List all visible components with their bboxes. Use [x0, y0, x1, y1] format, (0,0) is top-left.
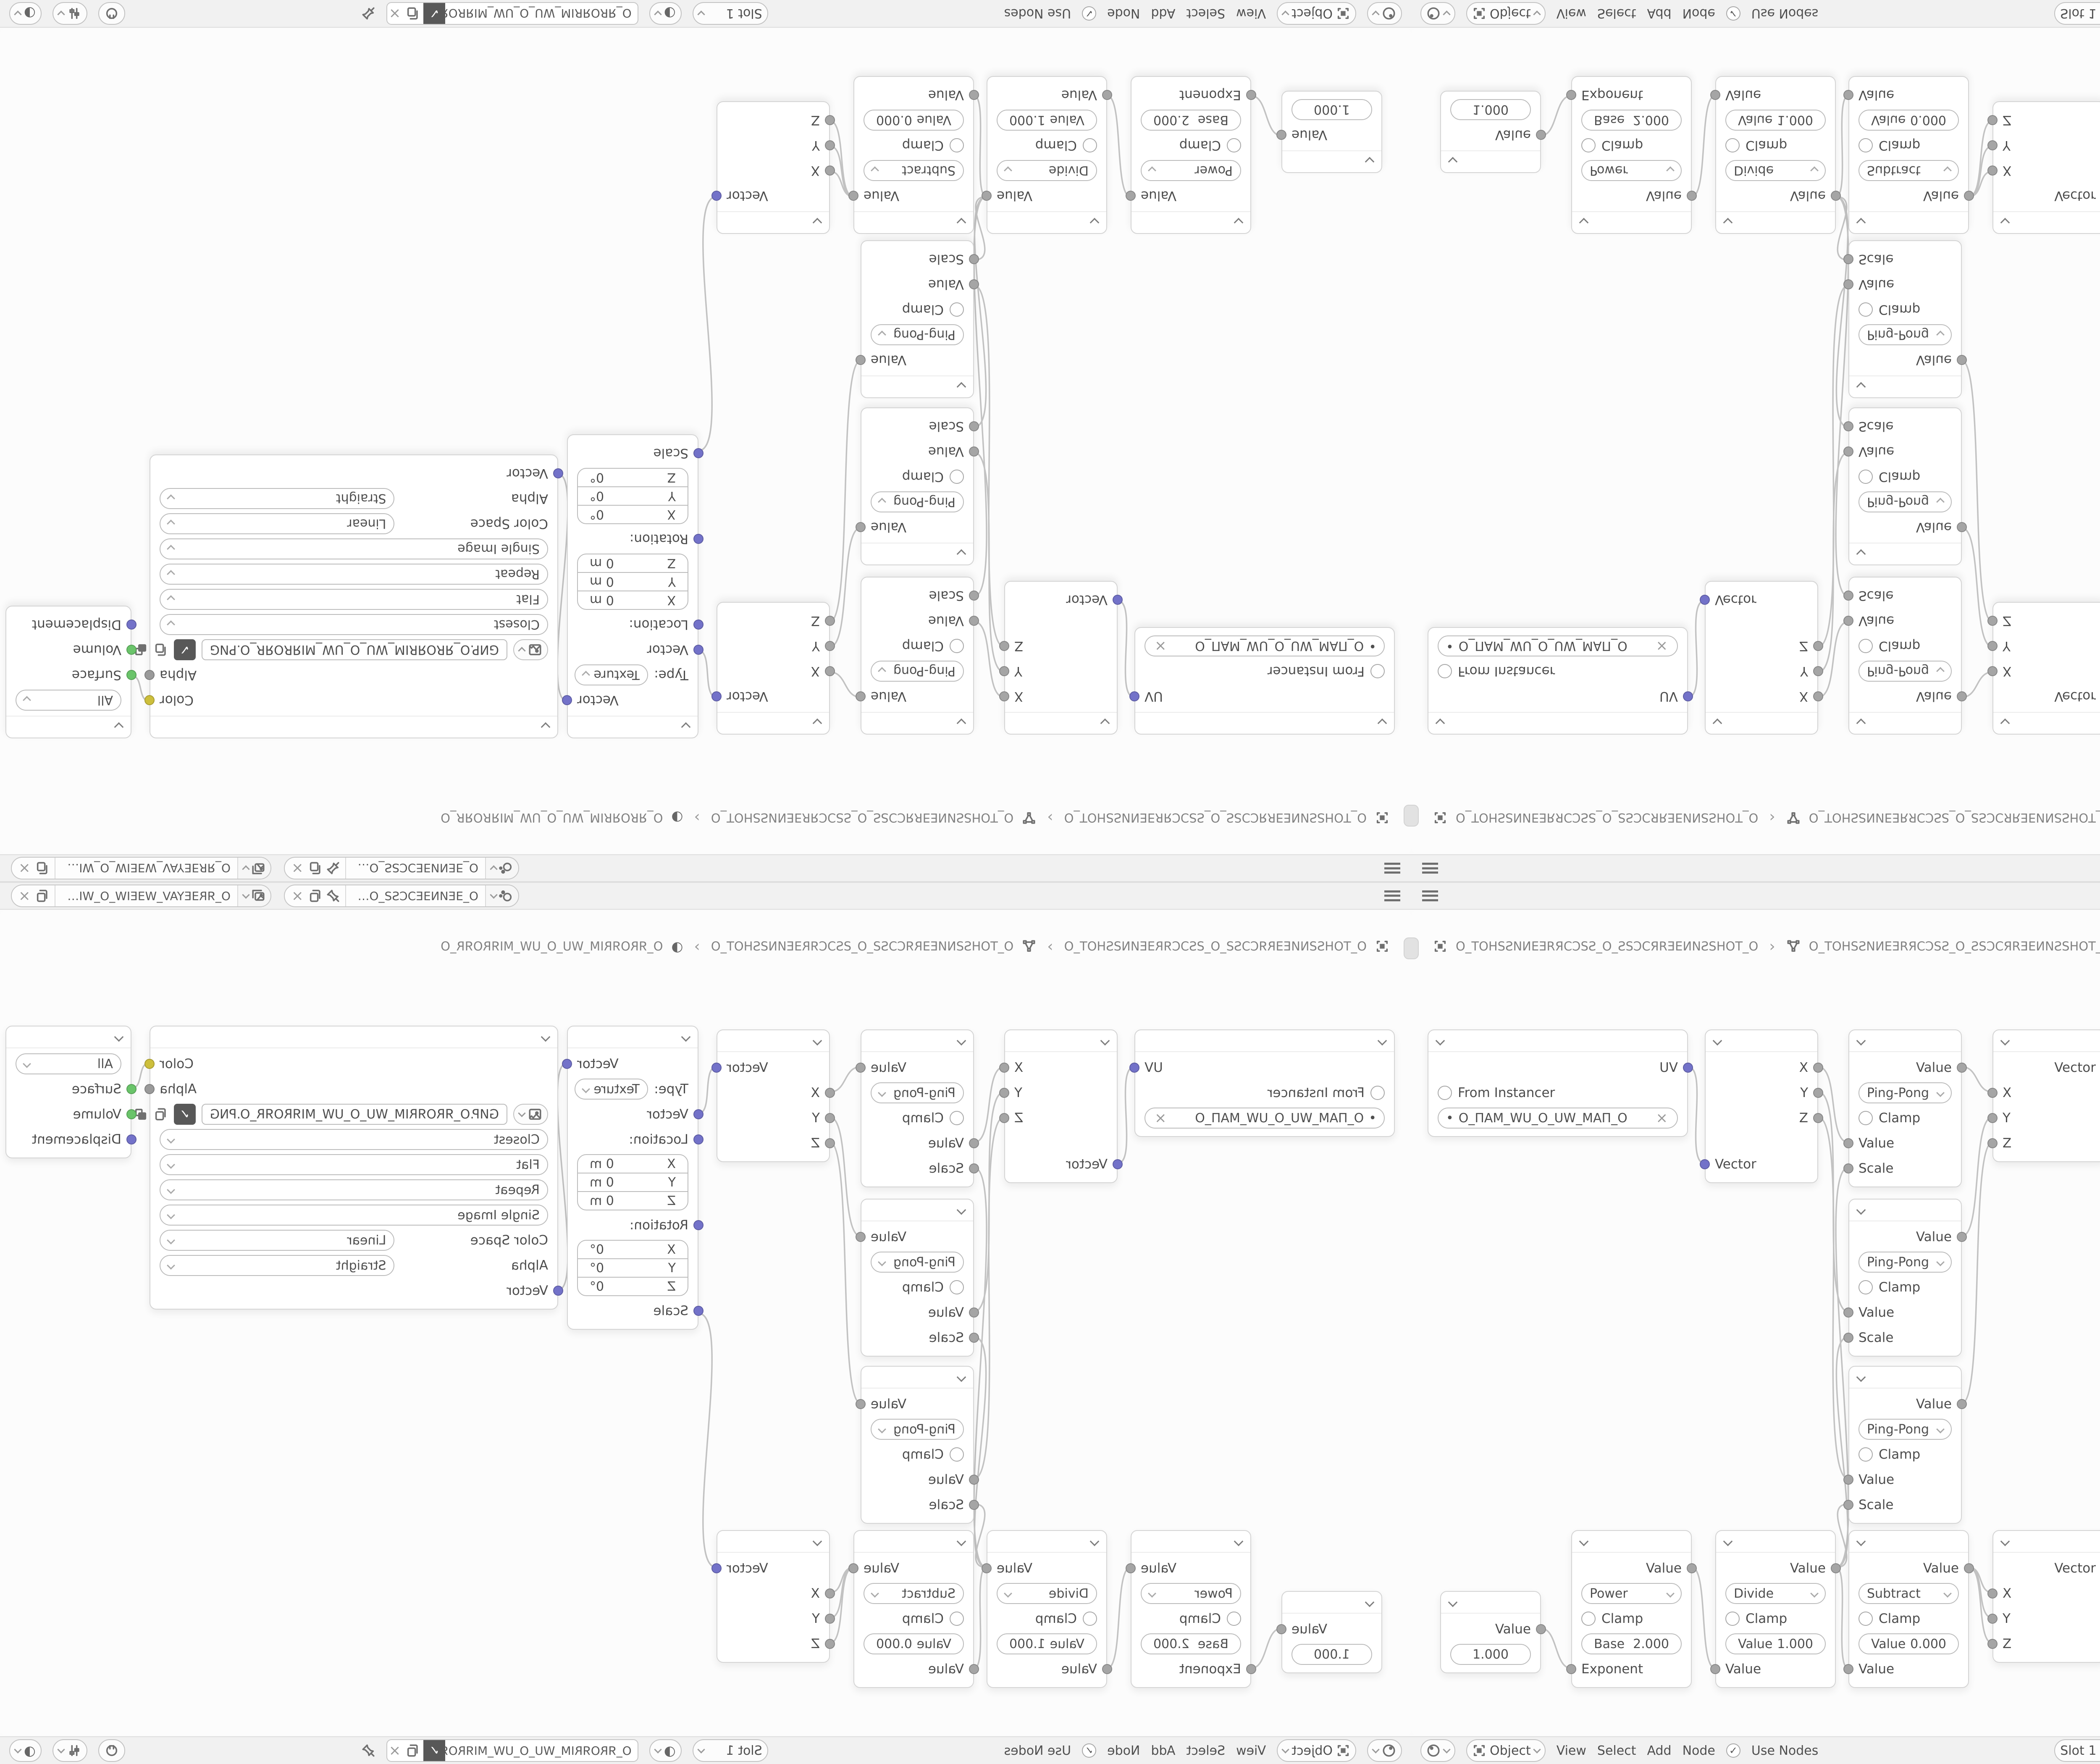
- source-dropdown[interactable]: Single Image: [160, 538, 548, 559]
- collapse-icon[interactable]: [1856, 719, 1866, 728]
- volume-input-socket[interactable]: [126, 645, 136, 655]
- value-input-socket[interactable]: [969, 279, 979, 289]
- close-icon[interactable]: ×: [17, 861, 32, 875]
- node-math-pingpong-z[interactable]: ValuePing-PongClampValueScale: [1848, 1366, 1962, 1524]
- color-output-socket[interactable]: [144, 695, 155, 705]
- scale-input-socket[interactable]: [693, 1306, 703, 1316]
- surface-input-socket[interactable]: [126, 1084, 136, 1094]
- value-output-socket[interactable]: [1126, 1563, 1136, 1573]
- operation-dropdown[interactable]: Divide: [1725, 160, 1826, 181]
- duplicate-icon[interactable]: [309, 889, 323, 903]
- uv-map-name-field[interactable]: • O_ПAM_WU_O_UW_MAП_O ×: [1144, 1108, 1385, 1129]
- breadcrumb-data[interactable]: O_TOHSƧNИEƎRЯCƆSƧ_O_ƧSƆCЯRƎEИNƧSHOT_O: [1809, 811, 2100, 825]
- node-math-divide[interactable]: ValueDivideClampValue1.000Value: [1715, 1530, 1836, 1688]
- value-output-socket[interactable]: [1536, 1624, 1546, 1634]
- operation-dropdown[interactable]: Power: [1581, 160, 1682, 181]
- value-output-socket[interactable]: [848, 191, 858, 201]
- vector-output-socket[interactable]: [562, 695, 572, 705]
- value-output-socket[interactable]: [1957, 1399, 1967, 1409]
- operation-dropdown[interactable]: Divide: [1725, 1583, 1826, 1604]
- value-output-socket[interactable]: [856, 1232, 866, 1242]
- value-input-socket[interactable]: [969, 1475, 979, 1485]
- duplicate-icon[interactable]: [406, 1743, 420, 1758]
- breadcrumb-object[interactable]: O_TOHSƧNИEƎRЯCƆSƧ_O_ƧSƆCЯRƎEИNƧSHOT_O: [1064, 811, 1367, 825]
- projection-dropdown[interactable]: Flat: [160, 1154, 548, 1175]
- operation-dropdown[interactable]: Ping-Pong: [1858, 1419, 1952, 1440]
- node-math-pingpong-z[interactable]: ValuePing-PongClampValueScale: [861, 240, 974, 398]
- vector-input-socket[interactable]: [1113, 1159, 1123, 1169]
- location-input-socket[interactable]: [693, 1134, 703, 1144]
- location-z-field[interactable]: Z0 m: [577, 1191, 688, 1210]
- operation-dropdown[interactable]: Ping-Pong: [1858, 1252, 1952, 1273]
- uv-output-socket[interactable]: [1683, 1063, 1693, 1073]
- y-input-socket[interactable]: [825, 1614, 835, 1624]
- location-x-field[interactable]: X0 m: [577, 591, 688, 610]
- rotation-y-field[interactable]: Y0°: [577, 486, 688, 506]
- pin-icon[interactable]: [326, 889, 341, 903]
- node-math-pingpong-y[interactable]: ValuePing-PongClampValueScale: [1848, 407, 1962, 565]
- x-output-socket[interactable]: [1813, 691, 1823, 701]
- menu-add[interactable]: Add: [1647, 6, 1671, 21]
- y-input-socket[interactable]: [1987, 1113, 1998, 1123]
- close-icon[interactable]: ×: [1654, 639, 1670, 653]
- shader-mode-dropdown[interactable]: Object: [1466, 2, 1546, 25]
- mapping-type-dropdown[interactable]: Texture: [575, 1079, 648, 1100]
- value-field[interactable]: Base2.000: [1141, 110, 1241, 131]
- clamp-checkbox[interactable]: [950, 302, 964, 317]
- value-output-socket[interactable]: [856, 691, 866, 701]
- node-combine-xyz-main[interactable]: VectorXYZ: [1992, 1029, 2100, 1162]
- vector-output-socket[interactable]: [711, 691, 722, 701]
- scale-input-socket[interactable]: [1843, 1500, 1853, 1510]
- value-output-socket[interactable]: [848, 1563, 858, 1573]
- displacement-input-socket[interactable]: [126, 619, 136, 630]
- operation-dropdown[interactable]: Ping-Pong: [1858, 324, 1952, 345]
- collapse-icon[interactable]: [2000, 218, 2010, 228]
- close-icon[interactable]: ×: [1153, 639, 1168, 653]
- value-input-socket[interactable]: [969, 90, 979, 100]
- value-output-socket[interactable]: [1687, 1563, 1697, 1573]
- location-x-field[interactable]: X0 m: [577, 1154, 688, 1173]
- close-icon[interactable]: ×: [1654, 1111, 1670, 1125]
- node-image-texture[interactable]: Color Alpha GИP.O_ЯROЯRIM_WU_O_UW_MIЯROЯ…: [150, 454, 558, 738]
- collapse-icon[interactable]: [957, 1036, 966, 1046]
- collapse-icon[interactable]: [2000, 1036, 2010, 1046]
- snap-button[interactable]: [98, 1739, 125, 1762]
- value-input-socket[interactable]: [1843, 1664, 1853, 1674]
- value-output-socket[interactable]: [1831, 191, 1841, 201]
- duplicate-icon[interactable]: [36, 889, 50, 903]
- collapse-icon[interactable]: [1723, 218, 1733, 228]
- menu-view[interactable]: View: [1236, 1743, 1266, 1758]
- alpha-output-socket[interactable]: [144, 670, 155, 680]
- operation-dropdown[interactable]: Subtract: [864, 1583, 964, 1604]
- x-input-socket[interactable]: [825, 1588, 835, 1599]
- breadcrumb-data[interactable]: O_TOHSƧNИEƎRЯCƆSƧ_O_ƧSƆCЯRƎEИNƧSHOT_O: [711, 939, 1013, 953]
- menu-select[interactable]: Select: [1597, 6, 1636, 21]
- material-browse-button[interactable]: ◑: [649, 2, 682, 25]
- collapse-icon[interactable]: [957, 218, 966, 228]
- rotation-z-field[interactable]: Z0°: [577, 468, 688, 487]
- menu-hamburger-icon[interactable]: [1384, 890, 1400, 901]
- clamp-checkbox[interactable]: [950, 639, 964, 653]
- material-name-field[interactable]: O_ЯROЯRIM_WU_O_UW_MIЯROЯR_O ✓ ×: [386, 1739, 638, 1762]
- volume-input-socket[interactable]: [126, 1109, 136, 1119]
- clamp-checkbox[interactable]: [950, 1612, 964, 1626]
- node-math-divide[interactable]: ValueDivideClampValue1.000Value: [987, 76, 1107, 234]
- node-value[interactable]: Value 1.000: [1281, 91, 1382, 173]
- node-material-output[interactable]: All Surface Volume Displacement: [5, 1026, 131, 1158]
- y-input-socket[interactable]: [825, 140, 835, 150]
- value-field[interactable]: Value1.000: [1725, 1633, 1826, 1654]
- collapse-icon[interactable]: [1234, 218, 1244, 228]
- value-output-socket[interactable]: [856, 1063, 866, 1073]
- x-output-socket[interactable]: [999, 1063, 1009, 1073]
- value-field[interactable]: 1.000: [1291, 99, 1372, 120]
- z-input-socket[interactable]: [825, 1138, 835, 1148]
- vector-input-socket[interactable]: [553, 468, 563, 478]
- operation-dropdown[interactable]: Subtract: [1858, 160, 1959, 181]
- collapse-icon[interactable]: [957, 382, 966, 392]
- y-output-socket[interactable]: [999, 666, 1009, 676]
- breadcrumb-object[interactable]: O_TOHSƧNИEƎRЯCƆSƧ_O_ƧSƆCЯRƎEИNƧSHOT_O: [1456, 811, 1758, 825]
- node-image-texture[interactable]: Color Alpha GИP.O_ЯROЯRIM_WU_O_UW_MIЯROЯ…: [150, 1026, 558, 1310]
- node-combine-xyz-scale[interactable]: VectorXYZ: [1992, 1530, 2100, 1663]
- shader-mode-dropdown[interactable]: Object: [1277, 1739, 1356, 1762]
- breadcrumb-data[interactable]: O_TOHSƧNИEƎRЯCƆSƧ_O_ƧSƆCЯRƎEИNƧSHOT_O: [711, 811, 1013, 825]
- menu-node[interactable]: Node: [1107, 1743, 1140, 1758]
- node-separate-xyz[interactable]: X Y Z Vector: [1705, 581, 1818, 735]
- node-math-power[interactable]: ValuePowerClampBase2.000Exponent: [1571, 76, 1692, 234]
- output-target-dropdown[interactable]: All: [16, 690, 121, 711]
- collapse-icon[interactable]: [1378, 719, 1387, 728]
- image-browse-button[interactable]: [513, 1104, 548, 1125]
- operation-dropdown[interactable]: Ping-Pong: [1858, 1082, 1952, 1103]
- clamp-checkbox[interactable]: [1083, 138, 1097, 152]
- value-output-socket[interactable]: [1964, 191, 1974, 201]
- value-input-socket[interactable]: [1566, 90, 1576, 100]
- clamp-checkbox[interactable]: [950, 1111, 964, 1125]
- collapse-icon[interactable]: [957, 1537, 966, 1546]
- operation-dropdown[interactable]: Ping-Pong: [871, 324, 964, 345]
- node-value[interactable]: Value 1.000: [1440, 91, 1541, 173]
- collapse-icon[interactable]: [1378, 1036, 1387, 1046]
- node-math-pingpong-x[interactable]: ValuePing-PongClampValueScale: [1848, 577, 1962, 735]
- duplicate-icon[interactable]: [36, 861, 50, 875]
- scale-input-socket[interactable]: [1843, 254, 1853, 264]
- menu-select[interactable]: Select: [1186, 1743, 1226, 1758]
- value-output-socket[interactable]: [1964, 1563, 1974, 1573]
- node-combine-xyz-main[interactable]: VectorXYZ: [717, 602, 830, 735]
- clamp-checkbox[interactable]: [950, 1447, 964, 1462]
- viewlayer-selector[interactable]: O_ЯRƎEYAV_WƎEIW_O_WIƎEW_VAYƎERЯ_O ×: [11, 857, 271, 879]
- value-output-socket[interactable]: [1957, 355, 1967, 365]
- shader-mode-dropdown[interactable]: Object: [1466, 1739, 1546, 1762]
- z-input-socket[interactable]: [1987, 115, 1998, 125]
- interpolation-dropdown[interactable]: Closest: [160, 1129, 548, 1150]
- clamp-checkbox[interactable]: [950, 470, 964, 484]
- menu-add[interactable]: Add: [1151, 6, 1175, 21]
- menu-node[interactable]: Node: [1683, 1743, 1715, 1758]
- node-math-power[interactable]: ValuePowerClampBase2.000Exponent: [1131, 1530, 1251, 1688]
- value-input-socket[interactable]: [969, 616, 979, 626]
- y-output-socket[interactable]: [999, 1088, 1009, 1098]
- value-field[interactable]: Value1.000: [997, 1633, 1097, 1654]
- clamp-checkbox[interactable]: [1227, 1612, 1241, 1626]
- value-input-socket[interactable]: [1843, 616, 1853, 626]
- node-math-subtract[interactable]: ValueSubtractClampValue0.000Value: [853, 1530, 974, 1688]
- node-value[interactable]: Value 1.000: [1281, 1591, 1382, 1673]
- scene-selector[interactable]: O_ƎEИNƎEƆCSƧ_O_ƧSƆCƎEИ... ×: [284, 885, 519, 907]
- vector-input-socket[interactable]: [553, 1286, 563, 1296]
- mapping-type-dropdown[interactable]: Texture: [575, 664, 648, 685]
- output-target-dropdown[interactable]: All: [16, 1053, 121, 1074]
- clamp-checkbox[interactable]: [950, 138, 964, 152]
- node-uv-map[interactable]: UV From Instancer • O_ПAM_WU_O_UW_MAП_O …: [1428, 1029, 1688, 1137]
- use-nodes-checkbox[interactable]: ✓: [1726, 6, 1740, 21]
- collapse-icon[interactable]: [541, 722, 551, 732]
- value-output-socket[interactable]: [1687, 191, 1697, 201]
- node-math-pingpong-x[interactable]: ValuePing-PongClampValueScale: [1848, 1029, 1962, 1187]
- collapse-icon[interactable]: [957, 719, 966, 728]
- y-input-socket[interactable]: [1987, 641, 1998, 651]
- vector-input-socket[interactable]: [1700, 1159, 1710, 1169]
- operation-dropdown[interactable]: Ping-Pong: [871, 1419, 964, 1440]
- collapse-icon[interactable]: [957, 1205, 966, 1215]
- collapse-icon[interactable]: [1365, 1598, 1375, 1607]
- fake-user-shield-button[interactable]: ✓: [174, 1104, 196, 1125]
- clamp-checkbox[interactable]: [1725, 138, 1740, 152]
- collapse-icon[interactable]: [957, 549, 966, 559]
- clamp-checkbox[interactable]: [1858, 1447, 1873, 1462]
- x-input-socket[interactable]: [825, 165, 835, 176]
- clamp-checkbox[interactable]: [1858, 639, 1873, 653]
- menu-hamburger-icon[interactable]: [1384, 863, 1400, 874]
- node-material-output[interactable]: All Surface Volume Displacement: [5, 606, 131, 738]
- collapse-icon[interactable]: [2000, 719, 2010, 728]
- value-input-socket[interactable]: [969, 1138, 979, 1148]
- uv-map-name-field[interactable]: • O_ПAM_WU_O_UW_MAП_O ×: [1438, 635, 1678, 656]
- scale-input-socket[interactable]: [969, 591, 979, 601]
- value-field[interactable]: 1.000: [1291, 1644, 1372, 1665]
- value-output-socket[interactable]: [982, 1563, 992, 1573]
- shader-mode-dropdown[interactable]: Object: [1277, 2, 1356, 25]
- menu-view[interactable]: View: [1557, 1743, 1586, 1758]
- collapse-icon[interactable]: [1579, 218, 1589, 228]
- node-math-power[interactable]: ValuePowerClampBase2.000Exponent: [1571, 1530, 1692, 1688]
- clamp-checkbox[interactable]: [1858, 1612, 1873, 1626]
- operation-dropdown[interactable]: Divide: [997, 160, 1097, 181]
- collapse-icon[interactable]: [1856, 382, 1866, 392]
- from-instancer-checkbox[interactable]: [1370, 664, 1385, 678]
- z-output-socket[interactable]: [999, 1113, 1009, 1123]
- collapse-icon[interactable]: [1856, 1205, 1866, 1215]
- image-name-field[interactable]: GИP.O_ЯROЯRIM_WU_O_UW_MIЯROЯR_O.PNG: [202, 639, 507, 660]
- editor-type-button[interactable]: [1420, 1739, 1455, 1762]
- value-input-socket[interactable]: [1566, 1664, 1576, 1674]
- collapse-icon[interactable]: [681, 1032, 691, 1042]
- value-input-socket[interactable]: [969, 1307, 979, 1318]
- collapse-icon[interactable]: [1436, 719, 1445, 728]
- from-instancer-checkbox[interactable]: [1438, 664, 1452, 678]
- location-y-field[interactable]: Y0 m: [577, 1173, 688, 1192]
- node-combine-xyz-scale[interactable]: VectorXYZ: [717, 1530, 830, 1663]
- alpha-mode-dropdown[interactable]: Straight: [160, 488, 395, 509]
- uv-output-socket[interactable]: [1129, 1063, 1139, 1073]
- collapse-icon[interactable]: [1436, 1036, 1445, 1046]
- value-field[interactable]: Base2.000: [1581, 110, 1682, 131]
- node-math-pingpong-x[interactable]: ValuePing-PongClampValueScale: [861, 1029, 974, 1187]
- operation-dropdown[interactable]: Divide: [997, 1583, 1097, 1604]
- from-instancer-checkbox[interactable]: [1438, 1086, 1452, 1100]
- value-input-socket[interactable]: [1102, 1664, 1112, 1674]
- value-input-socket[interactable]: [1843, 279, 1853, 289]
- z-input-socket[interactable]: [1987, 1639, 1998, 1649]
- scale-input-socket[interactable]: [969, 1500, 979, 1510]
- value-field[interactable]: Value1.000: [997, 110, 1097, 131]
- node-math-subtract[interactable]: ValueSubtractClampValue0.000Value: [1848, 1530, 1969, 1688]
- z-output-socket[interactable]: [1813, 1113, 1823, 1123]
- node-separate-xyz[interactable]: X Y Z Vector: [1004, 581, 1118, 735]
- duplicate-icon[interactable]: [406, 6, 420, 21]
- value-field[interactable]: Base2.000: [1581, 1633, 1682, 1654]
- value-output-socket[interactable]: [1276, 130, 1286, 140]
- value-input-socket[interactable]: [1246, 90, 1256, 100]
- operation-dropdown[interactable]: Ping-Pong: [871, 491, 964, 512]
- uv-map-name-field[interactable]: • O_ПAM_WU_O_UW_MAП_O ×: [1144, 635, 1385, 656]
- z-output-socket[interactable]: [1813, 641, 1823, 651]
- scale-input-socket[interactable]: [969, 1163, 979, 1173]
- breadcrumb-object[interactable]: O_TOHSƧNИEƎRЯCƆSƧ_O_ƧSƆCЯRƎEИNƧSHOT_O: [1064, 939, 1367, 953]
- collapse-icon[interactable]: [114, 722, 124, 732]
- rotation-input-socket[interactable]: [693, 534, 703, 544]
- scene-selector[interactable]: O_ƎEИNƎEƆCSƧ_O_ƧSƆCƎEИ... ×: [284, 857, 519, 879]
- clamp-checkbox[interactable]: [1858, 470, 1873, 484]
- fake-user-shield-button[interactable]: ✓: [423, 3, 445, 24]
- node-value[interactable]: Value 1.000: [1440, 1591, 1541, 1673]
- collapse-icon[interactable]: [957, 1373, 966, 1382]
- fake-user-shield-button[interactable]: ✓: [174, 639, 196, 660]
- material-browse-button[interactable]: ◑: [649, 1739, 682, 1762]
- pin-icon[interactable]: [361, 6, 375, 21]
- pin-icon[interactable]: [361, 1743, 375, 1758]
- operation-dropdown[interactable]: Power: [1581, 1583, 1682, 1604]
- menu-select[interactable]: Select: [1186, 6, 1226, 21]
- node-math-pingpong-y[interactable]: ValuePing-PongClampValueScale: [1848, 1199, 1962, 1357]
- collapse-icon[interactable]: [813, 1537, 822, 1546]
- uv-map-name-field[interactable]: • O_ПAM_WU_O_UW_MAП_O ×: [1438, 1108, 1678, 1129]
- collapse-icon[interactable]: [1365, 157, 1375, 167]
- node-combine-xyz-scale[interactable]: VectorXYZ: [1992, 101, 2100, 234]
- material-name-field[interactable]: O_ЯROЯRIM_WU_O_UW_MIЯROЯR_O ✓ ×: [386, 2, 638, 25]
- collapse-icon[interactable]: [1713, 1036, 1722, 1046]
- vector-input-socket[interactable]: [1700, 595, 1710, 605]
- vector-input-socket[interactable]: [1113, 595, 1123, 605]
- collapse-icon[interactable]: [1448, 1598, 1458, 1607]
- slot-dropdown[interactable]: Slot 1: [2054, 2, 2100, 25]
- image-browse-button[interactable]: [513, 639, 548, 660]
- projection-dropdown[interactable]: Flat: [160, 589, 548, 610]
- operation-dropdown[interactable]: Power: [1141, 1583, 1241, 1604]
- clamp-checkbox[interactable]: [1581, 138, 1596, 152]
- node-uv-map[interactable]: UV From Instancer • O_ПAM_WU_O_UW_MAП_O …: [1428, 627, 1688, 735]
- node-math-pingpong-x[interactable]: ValuePing-PongClampValueScale: [861, 577, 974, 735]
- operation-dropdown[interactable]: Subtract: [1858, 1583, 1959, 1604]
- clamp-checkbox[interactable]: [1083, 1612, 1097, 1626]
- value-field[interactable]: Value0.000: [1858, 110, 1959, 131]
- from-instancer-checkbox[interactable]: [1370, 1086, 1385, 1100]
- scale-input-socket[interactable]: [693, 448, 703, 458]
- y-input-socket[interactable]: [825, 1113, 835, 1123]
- fake-user-shield-button[interactable]: ✓: [423, 1740, 445, 1761]
- clamp-checkbox[interactable]: [950, 1280, 964, 1294]
- collapse-icon[interactable]: [1100, 1036, 1110, 1046]
- rotation-x-field[interactable]: X0°: [577, 1240, 688, 1259]
- value-field[interactable]: Value0.000: [864, 110, 964, 131]
- location-z-field[interactable]: Z0 m: [577, 554, 688, 573]
- node-separate-xyz[interactable]: X Y Z Vector: [1705, 1029, 1818, 1183]
- node-math-power[interactable]: ValuePowerClampBase2.000Exponent: [1131, 76, 1251, 234]
- node-math-divide[interactable]: ValueDivideClampValue1.000Value: [1715, 76, 1836, 234]
- y-input-socket[interactable]: [825, 641, 835, 651]
- value-input-socket[interactable]: [1710, 1664, 1720, 1674]
- vector-output-socket[interactable]: [711, 1563, 722, 1573]
- value-output-socket[interactable]: [856, 355, 866, 365]
- node-math-pingpong-y[interactable]: ValuePing-PongClampValueScale: [861, 1199, 974, 1357]
- operation-dropdown[interactable]: Ping-Pong: [871, 661, 964, 682]
- z-input-socket[interactable]: [825, 115, 835, 125]
- x-input-socket[interactable]: [1987, 165, 1998, 176]
- node-math-subtract[interactable]: ValueSubtractClampValue0.000Value: [1848, 76, 1969, 234]
- collapse-icon[interactable]: [541, 1032, 551, 1042]
- surface-input-socket[interactable]: [126, 670, 136, 680]
- close-icon[interactable]: ×: [290, 889, 305, 903]
- collapse-icon[interactable]: [1713, 719, 1722, 728]
- collapse-icon[interactable]: [813, 218, 822, 228]
- operation-dropdown[interactable]: Ping-Pong: [1858, 491, 1952, 512]
- menu-hamburger-icon[interactable]: [1422, 890, 1438, 901]
- value-input-socket[interactable]: [969, 1664, 979, 1674]
- toolbar-tab[interactable]: [1404, 937, 1411, 959]
- toolbar-tab[interactable]: [1404, 805, 1411, 827]
- collapse-icon[interactable]: [1856, 549, 1866, 559]
- shading-button[interactable]: ◑: [9, 2, 42, 25]
- node-mapping[interactable]: Vector Type: Texture Vector Location: X0…: [567, 434, 698, 738]
- collapse-icon[interactable]: [813, 1036, 822, 1046]
- menu-hamburger-icon[interactable]: [1422, 863, 1438, 874]
- slot-dropdown[interactable]: Slot 1: [693, 1739, 768, 1762]
- uv-output-socket[interactable]: [1683, 691, 1693, 701]
- location-input-socket[interactable]: [693, 619, 703, 630]
- node-math-divide[interactable]: ValueDivideClampValue1.000Value: [987, 1530, 1107, 1688]
- close-icon[interactable]: ×: [17, 889, 32, 903]
- rotation-z-field[interactable]: Z0°: [577, 1277, 688, 1296]
- scale-input-socket[interactable]: [1843, 1163, 1853, 1173]
- value-input-socket[interactable]: [1843, 446, 1853, 457]
- menu-view[interactable]: View: [1236, 6, 1266, 21]
- operation-dropdown[interactable]: Ping-Pong: [1858, 661, 1952, 682]
- value-output-socket[interactable]: [856, 522, 866, 532]
- value-output-socket[interactable]: [1957, 1063, 1967, 1073]
- node-math-pingpong-z[interactable]: ValuePing-PongClampValueScale: [861, 1366, 974, 1524]
- scale-input-socket[interactable]: [1843, 1333, 1853, 1343]
- shading-button[interactable]: ◑: [9, 1739, 42, 1762]
- editor-type-button[interactable]: [1367, 1739, 1402, 1762]
- menu-view[interactable]: View: [1557, 6, 1586, 21]
- close-icon[interactable]: ×: [1153, 1111, 1168, 1125]
- collapse-icon[interactable]: [1856, 1537, 1866, 1546]
- value-input-socket[interactable]: [1246, 1664, 1256, 1674]
